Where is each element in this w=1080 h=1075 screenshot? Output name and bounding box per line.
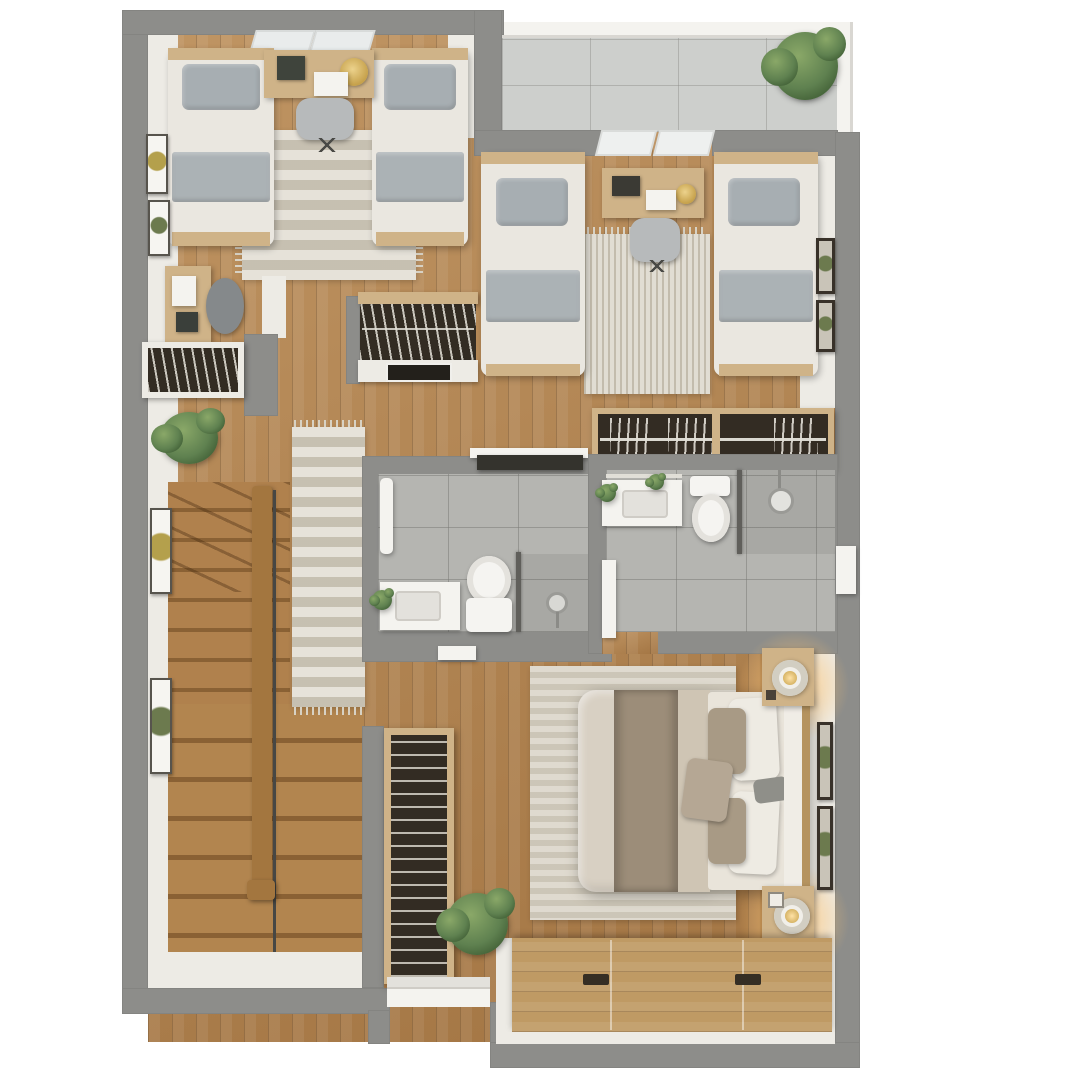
bedroom2-bed-left-footboard xyxy=(486,364,580,376)
bathroom1-shower-stem xyxy=(556,612,559,628)
bedroom1-wall-frame-1 xyxy=(146,134,168,194)
bathroom2-plant-1 xyxy=(598,484,616,502)
outer-wall-left xyxy=(122,10,148,1014)
bench-side-ledge xyxy=(496,938,512,1032)
bathroom1-dark-shelf xyxy=(477,455,583,470)
bedroom2-bed-left-blanket xyxy=(486,270,580,322)
bedroom2-wall-frame-2 xyxy=(816,300,835,352)
bedroom1-bed-left-footboard xyxy=(172,232,270,246)
ensuite-exterior-window-panel xyxy=(836,546,856,594)
bench-handle-left xyxy=(583,974,609,985)
master-headboard-wood-edge xyxy=(802,690,810,892)
stair-wall-frame-2 xyxy=(150,678,172,774)
bedroom1-bed-left-headboard xyxy=(168,48,274,60)
outer-wall-bottom-right xyxy=(490,1042,860,1068)
floor-plan-canvas xyxy=(0,0,1080,1075)
bottom-threshold-steps xyxy=(387,977,490,1007)
bathroom2-door xyxy=(602,560,616,638)
bathroom2-shower-divider xyxy=(737,470,742,554)
bathroom1-toilet-bowl xyxy=(467,556,511,604)
bedroom1-desk-chair xyxy=(296,98,354,140)
wall-divider-bedroom1-balcony xyxy=(474,10,502,138)
tall-shelving-unit xyxy=(384,728,454,984)
bathroom1-shower-head xyxy=(546,592,568,614)
bedroom2-bed-right-footboard xyxy=(719,364,813,376)
nightstand-top-item xyxy=(766,690,776,700)
staircase-handrail-wood xyxy=(252,486,272,890)
bathroom1-shower-divider xyxy=(516,552,521,632)
shelving-unit-side-wall xyxy=(362,726,384,988)
bedroom1-desk-planter-box xyxy=(277,56,305,80)
bedroom2-window-right xyxy=(655,132,712,154)
bedroom2-chair-base xyxy=(644,260,670,272)
outer-wall-step-tab xyxy=(368,1010,390,1044)
bedroom2-window-left xyxy=(597,132,654,154)
bathroom1-toilet-base xyxy=(466,598,512,632)
bookcase-unit-screen xyxy=(386,363,452,382)
runner-fringe-bottom xyxy=(294,707,363,715)
nightstand-bottom-item xyxy=(768,892,784,908)
bookcase-unit-interior xyxy=(360,304,476,360)
master-bed xyxy=(578,690,820,892)
runner-fringe-top xyxy=(294,420,363,427)
hallway-runner-rug xyxy=(292,427,365,707)
bathroom2-sink-basin xyxy=(622,490,668,518)
balcony-plant xyxy=(772,32,838,100)
bedroom1-wall-frame-2 xyxy=(148,200,170,256)
bathroom2-shower-head xyxy=(768,488,794,514)
master-wall-frame-1 xyxy=(817,722,833,800)
master-storage-bench xyxy=(512,938,832,1032)
nook-chair xyxy=(206,278,244,334)
outer-wall-right xyxy=(835,132,860,1068)
bedroom1-bed-right-pillow xyxy=(384,64,456,110)
staircase-handrail-post xyxy=(247,880,275,900)
nook-bookshelf-books xyxy=(148,348,238,392)
nook-desk-item xyxy=(176,312,198,332)
hallway-plant xyxy=(160,412,218,464)
nightstand-lamp-top xyxy=(772,660,808,696)
master-bottom-white-strip xyxy=(496,1032,835,1044)
bench-seam-right xyxy=(742,940,744,1030)
bookcase-unit-top-edge xyxy=(358,292,478,304)
bedroom2-bed-left-headboard xyxy=(481,152,585,164)
stair-wall-frame-1 xyxy=(150,508,172,594)
bathroom1-sink-basin xyxy=(395,591,441,621)
bathroom1-plant xyxy=(372,590,392,610)
master-floor-plant xyxy=(446,893,508,955)
master-wall-frame-2 xyxy=(817,806,833,890)
bedroom2-wall-frame-1 xyxy=(816,238,835,294)
bedroom2-desk-laptop xyxy=(646,190,676,210)
outer-wall-bottom-left xyxy=(122,988,390,1014)
master-accent-cushion xyxy=(680,757,734,823)
bedroom2-bed-right-headboard xyxy=(714,152,818,164)
bedroom1-bed-right-footboard xyxy=(376,232,464,246)
bathroom2-toilet-tank xyxy=(690,476,730,496)
inner-wall-bottom-left xyxy=(178,952,364,988)
bench-handle-right xyxy=(735,974,761,985)
master-headboard xyxy=(784,690,802,892)
bathroom2-toilet-bowl xyxy=(692,494,730,542)
nook-partition-wall xyxy=(244,334,278,416)
bench-seam-left xyxy=(610,940,612,1030)
bedroom1-bed-right-blanket xyxy=(376,152,464,202)
bedroom1-desk-laptop xyxy=(314,72,348,96)
bedroom1-bed-left-blanket xyxy=(172,152,270,202)
bedroom1-chair-base xyxy=(312,138,342,152)
master-bed-throw xyxy=(614,690,678,892)
bathroom1-towel-rail xyxy=(380,478,393,554)
bathroom2-towel-bar xyxy=(606,474,682,478)
nook-white-pillar xyxy=(262,276,286,338)
bedroom2-bed-right-pillow xyxy=(728,178,800,226)
master-entry-door xyxy=(438,646,476,660)
nook-desk-paper xyxy=(172,276,196,306)
bedroom1-bed-left-pillow xyxy=(182,64,260,110)
bedroom2-desk-chair xyxy=(630,218,680,262)
bedroom2-bed-right-blanket xyxy=(719,270,813,322)
bedroom1-bed-right-headboard xyxy=(372,48,468,60)
bedroom2-bed-left-pillow xyxy=(496,178,568,226)
bedroom2-desk-clock xyxy=(676,184,696,204)
bathroom2-plant-2 xyxy=(648,474,664,490)
bedroom2-desk-tray xyxy=(612,176,640,196)
bookcase-unit-rail xyxy=(362,328,474,330)
